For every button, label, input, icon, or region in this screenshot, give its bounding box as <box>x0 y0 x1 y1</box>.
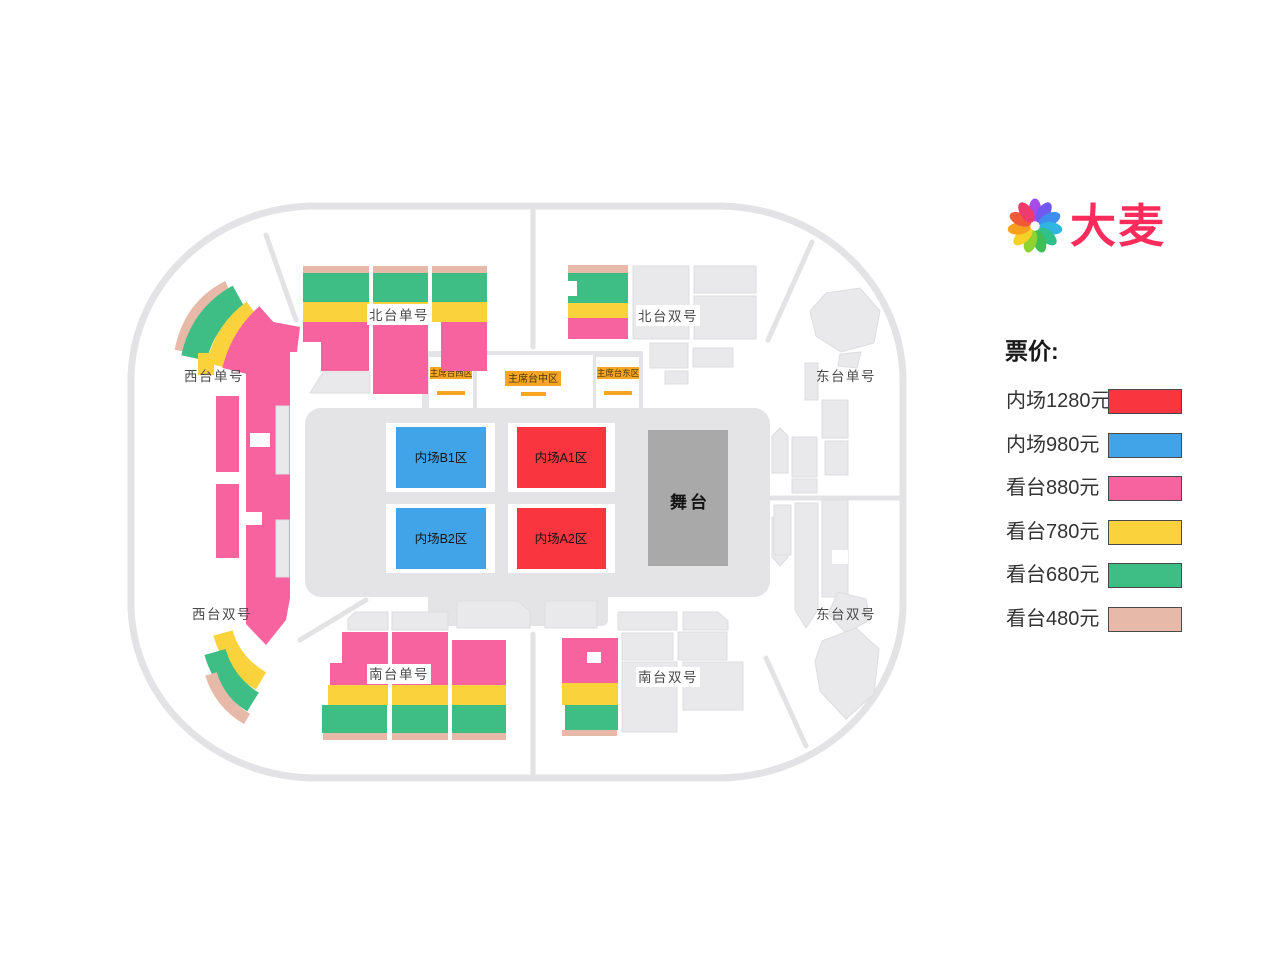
legend-item-label: 看台780元 <box>1006 520 1099 545</box>
stand-west-even[interactable]: 西台双号 <box>192 598 290 719</box>
seat-block-a1-label: 内场A1区 <box>535 451 588 465</box>
logo-wordmark: 大麦 <box>1070 197 1166 255</box>
service-block <box>792 437 817 477</box>
stand-label-south-odd: 南台单号 <box>369 667 429 682</box>
stripe-pink[interactable] <box>562 663 618 683</box>
stand-label-north-odd: 北台单号 <box>369 308 429 323</box>
stand-west-odd[interactable]: 西台单号 <box>181 287 300 598</box>
logo-flower-icon <box>1006 196 1064 256</box>
stripe-tan[interactable] <box>323 733 387 740</box>
stripe-pink[interactable] <box>441 342 487 371</box>
unavailable-block <box>822 400 848 438</box>
stripe-pink[interactable] <box>342 632 388 663</box>
unavailable-block <box>545 601 597 628</box>
stripe-green[interactable] <box>565 705 618 730</box>
unavailable-block <box>694 296 756 339</box>
legend-item: 看台680元 <box>1006 563 1186 588</box>
stand-east-even: 东台双号 <box>774 500 879 719</box>
unavailable-block <box>774 505 791 555</box>
unavailable-block <box>310 372 370 393</box>
legend-item: 内场1280元 <box>1006 389 1186 414</box>
unavailable-block <box>276 406 289 474</box>
price-swatch <box>1108 607 1183 633</box>
unavailable-block <box>618 612 677 630</box>
podium-label-east: 主席台东区 <box>597 368 640 378</box>
stripe-yellow[interactable] <box>452 685 506 705</box>
legend-item: 看台780元 <box>1006 520 1186 545</box>
service-block <box>772 428 788 473</box>
seat-map-screen: 主席台西区 主席台中区 主席台东区 舞台 内场B1区 内场A1区 内场B2区 内… <box>0 0 1280 956</box>
podium-underline-center <box>521 392 546 396</box>
stand-south-even[interactable]: 南台双号 <box>545 601 743 736</box>
legend-item-label: 内场980元 <box>1006 433 1099 458</box>
unavailable-block <box>622 633 673 660</box>
stripe-tan[interactable] <box>452 733 506 740</box>
price-swatch <box>1108 433 1183 459</box>
price-swatch <box>1108 389 1183 415</box>
podium-box-east <box>596 357 639 408</box>
divider-nw <box>266 235 296 320</box>
unavailable-block <box>348 612 388 630</box>
stand-label-north-even: 北台双号 <box>638 309 698 324</box>
stripe-notch <box>568 281 577 296</box>
stripe-yellow[interactable] <box>328 685 388 705</box>
divider-se <box>766 658 806 746</box>
stripe-notch <box>587 652 601 663</box>
unavailable-block <box>683 612 728 630</box>
unavailable-block <box>665 371 688 384</box>
price-legend: 内场1280元 内场980元 看台880元 看台780元 看台680元 看台48… <box>1006 389 1186 650</box>
price-swatch <box>1108 476 1183 502</box>
legend-item-label: 看台880元 <box>1006 476 1099 501</box>
unavailable-block <box>792 479 817 493</box>
podium-label-center: 主席台中区 <box>508 372 558 385</box>
stripe-tan[interactable] <box>562 730 617 736</box>
stripe-yellow[interactable] <box>392 685 448 705</box>
stripe-pink[interactable] <box>303 322 369 342</box>
legend-item: 看台480元 <box>1006 607 1186 632</box>
stand-label-east-even: 东台双号 <box>816 607 876 622</box>
podium-underline-west <box>437 391 465 395</box>
damai-logo: 大麦 <box>1006 196 1166 256</box>
stripe-tan[interactable] <box>373 266 428 273</box>
unavailable-block <box>694 266 756 293</box>
stripe-yellow[interactable] <box>303 302 369 322</box>
seat-block-b1-label: 内场B1区 <box>415 451 468 465</box>
stripe-pink[interactable] <box>441 322 487 342</box>
unavailable-block <box>810 288 880 352</box>
stripe-green[interactable] <box>322 705 387 733</box>
unavailable-block <box>795 503 818 628</box>
stripe-green[interactable] <box>432 273 487 302</box>
stand-label-west-even: 西台双号 <box>192 607 252 622</box>
stripe-notch <box>246 512 262 525</box>
legend-item-label: 看台480元 <box>1006 607 1099 632</box>
legend-item-label: 内场1280元 <box>1006 389 1111 414</box>
price-legend-title: 票价: <box>1005 332 1059 366</box>
price-swatch <box>1108 520 1183 546</box>
unavailable-block <box>276 520 289 577</box>
unavailable-block <box>825 441 848 475</box>
stripe-tan[interactable] <box>432 266 487 273</box>
stripe-notch <box>832 550 848 564</box>
stripe-yellow[interactable] <box>562 683 618 705</box>
stand-label-west-odd: 西台单号 <box>184 369 244 384</box>
stand-label-south-even: 南台双号 <box>638 670 698 685</box>
stripe-green[interactable] <box>392 705 448 733</box>
unavailable-block <box>633 266 689 339</box>
stripe-yellow[interactable] <box>432 302 487 322</box>
stripe-pink[interactable] <box>246 598 290 645</box>
unavailable-block <box>693 348 733 367</box>
stripe-pink[interactable] <box>243 318 300 352</box>
seat-block-b2-label: 内场B2区 <box>415 532 468 546</box>
legend-item: 内场980元 <box>1006 433 1186 458</box>
stripe-pink[interactable] <box>452 640 506 685</box>
stripe-tan[interactable] <box>568 265 628 273</box>
stripe-pink[interactable] <box>568 318 628 339</box>
divider-ne <box>768 242 812 340</box>
stand-label-east-odd: 东台单号 <box>816 369 876 384</box>
stripe-green[interactable] <box>373 273 428 302</box>
stripe-green[interactable] <box>303 273 369 302</box>
price-swatch <box>1108 563 1183 589</box>
stripe-notch <box>216 472 239 484</box>
unavailable-block <box>678 632 727 660</box>
stripe-tan[interactable] <box>303 266 369 273</box>
stripe-yellow[interactable] <box>568 303 628 318</box>
stripe-tan[interactable] <box>392 733 448 740</box>
legend-item-label: 看台680元 <box>1006 563 1099 588</box>
seat-block-a2-label: 内场A2区 <box>535 532 588 546</box>
stripe-green[interactable] <box>452 705 506 733</box>
unavailable-block <box>838 352 861 368</box>
stage-label: 舞台 <box>670 492 710 512</box>
podium-underline-east <box>604 391 632 395</box>
stand-south-odd[interactable]: 南台单号 <box>322 601 530 740</box>
stripe-pink[interactable] <box>321 342 369 371</box>
stripe-pink[interactable] <box>373 342 428 394</box>
unavailable-block <box>650 343 688 368</box>
stripe-notch <box>250 433 270 447</box>
unavailable-block <box>392 612 448 630</box>
unavailable-block <box>457 601 530 628</box>
unavailable-block <box>822 500 848 597</box>
legend-item: 看台880元 <box>1006 476 1186 501</box>
